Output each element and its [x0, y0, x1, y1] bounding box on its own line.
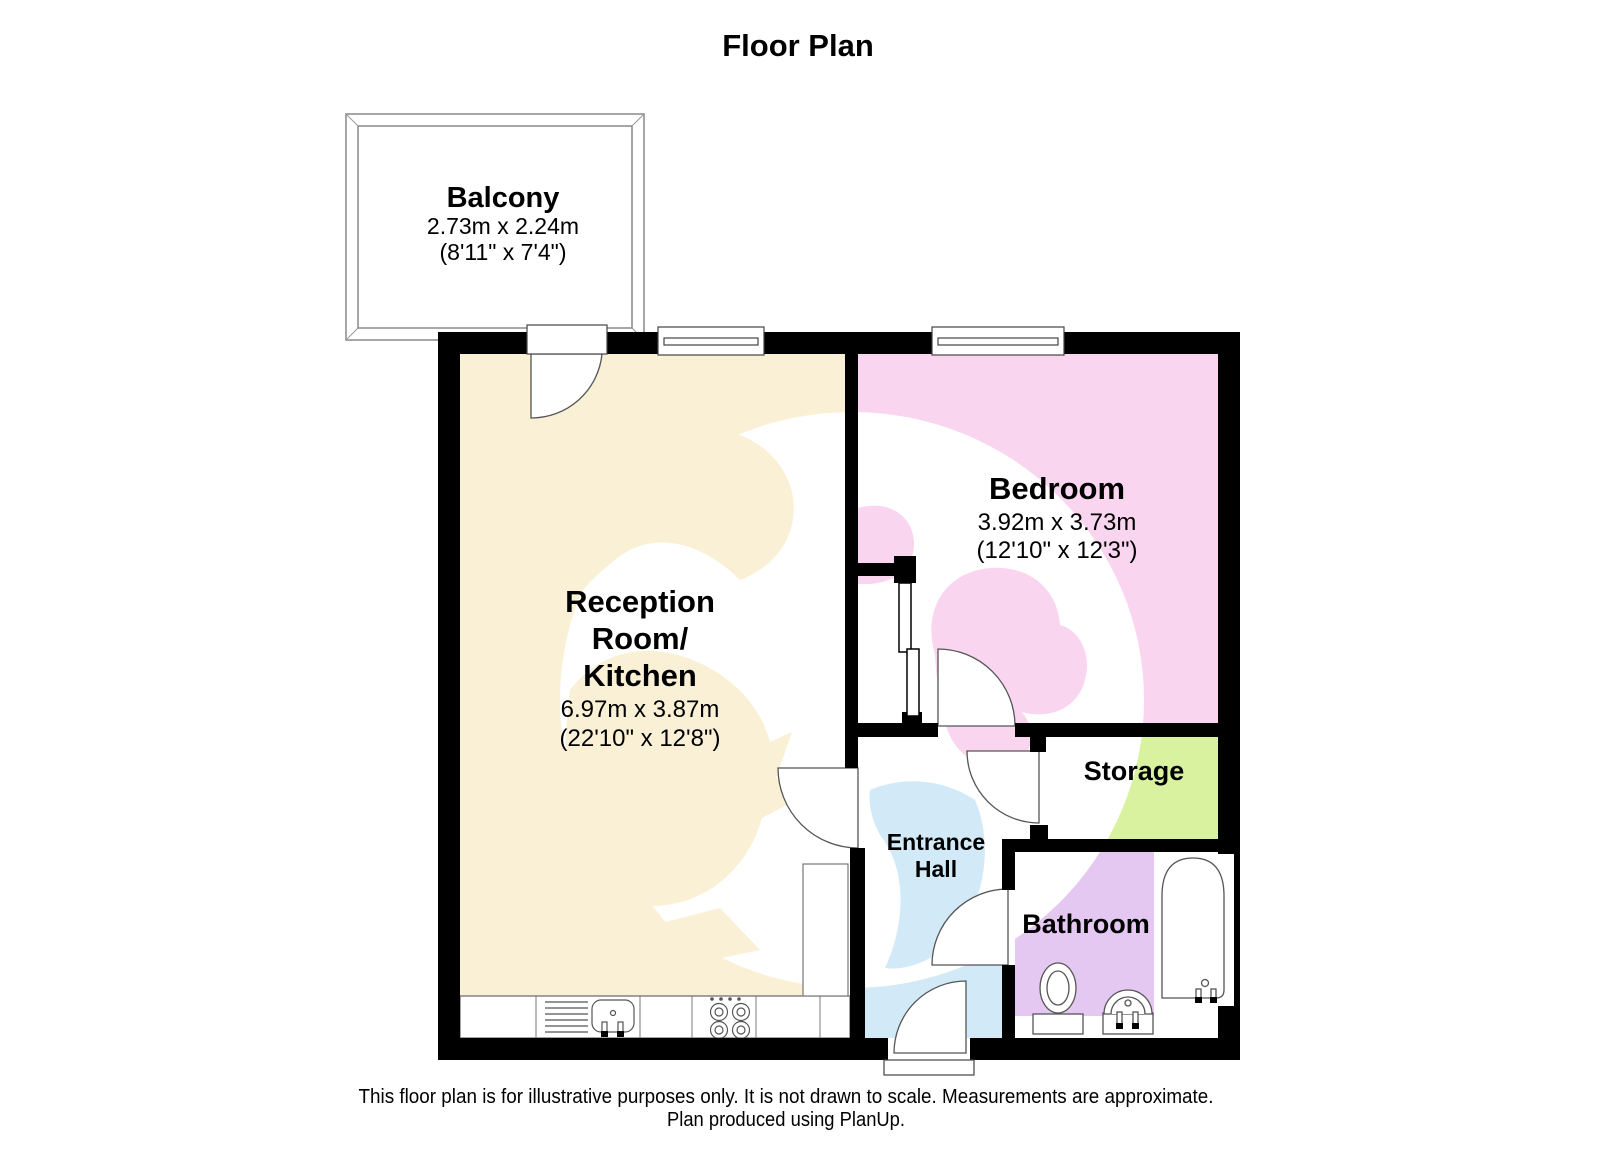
- footer-disclaimer: This floor plan is for illustrative purp…: [359, 1086, 1214, 1131]
- page-title: Floor Plan: [722, 28, 874, 63]
- floor-plan-page: Floor Plan Balcony 2.73m x 2.24m (8'11" …: [0, 0, 1600, 1163]
- balcony-dim-imperial: (8'11" x 7'4"): [440, 239, 567, 265]
- reception-name-1: Reception: [565, 584, 715, 619]
- kitchen-appliance-block: [803, 864, 848, 996]
- wall-left: [438, 332, 460, 1060]
- footer-line-2: Plan produced using PlanUp.: [667, 1109, 905, 1131]
- bathroom-label: Bathroom: [1022, 909, 1150, 939]
- balcony-door-frame: [527, 325, 607, 354]
- storage-label: Storage: [1084, 756, 1185, 786]
- balcony-dim-metric: 2.73m x 2.24m: [427, 213, 579, 239]
- entrance-threshold: [884, 1060, 974, 1075]
- bedroom-label: Bedroom 3.92m x 3.73m (12'10" x 12'3"): [977, 471, 1138, 564]
- wall-central-lower: [850, 848, 865, 1060]
- bedroom-window-icon: [932, 327, 1064, 355]
- reception-dim-imperial: (22'10" x 12'8"): [560, 725, 721, 752]
- kitchen-counter: [460, 996, 850, 1039]
- bedroom-dim-imperial: (12'10" x 12'3"): [977, 537, 1138, 564]
- bedroom-dim-metric: 3.92m x 3.73m: [978, 509, 1137, 536]
- entrance-hall-name-1: Entrance: [887, 829, 985, 855]
- bedroom-name: Bedroom: [989, 471, 1125, 506]
- wall-central-upper: [845, 354, 858, 768]
- reception-name-3: Kitchen: [583, 658, 697, 693]
- reception-dim-metric: 6.97m x 3.87m: [561, 696, 720, 723]
- footer-line-1: This floor plan is for illustrative purp…: [359, 1086, 1214, 1108]
- entrance-hall-name-2: Hall: [915, 856, 957, 882]
- reception-window-icon: [658, 327, 764, 355]
- reception-label: Reception Room/ Kitchen 6.97m x 3.87m (2…: [560, 584, 721, 752]
- closet-stub-wall: [858, 563, 898, 576]
- reception-name-2: Room/: [592, 621, 689, 656]
- kitchen-counter-outline: [460, 996, 850, 1038]
- floor-plan: Floor Plan Balcony 2.73m x 2.24m (8'11" …: [0, 0, 1600, 1163]
- balcony-label: Balcony 2.73m x 2.24m (8'11" x 7'4"): [427, 182, 579, 265]
- bathtub-icon: [1162, 858, 1224, 1003]
- balcony-name: Balcony: [447, 182, 560, 214]
- bathtub-nook-wall-thin: [1234, 854, 1240, 1006]
